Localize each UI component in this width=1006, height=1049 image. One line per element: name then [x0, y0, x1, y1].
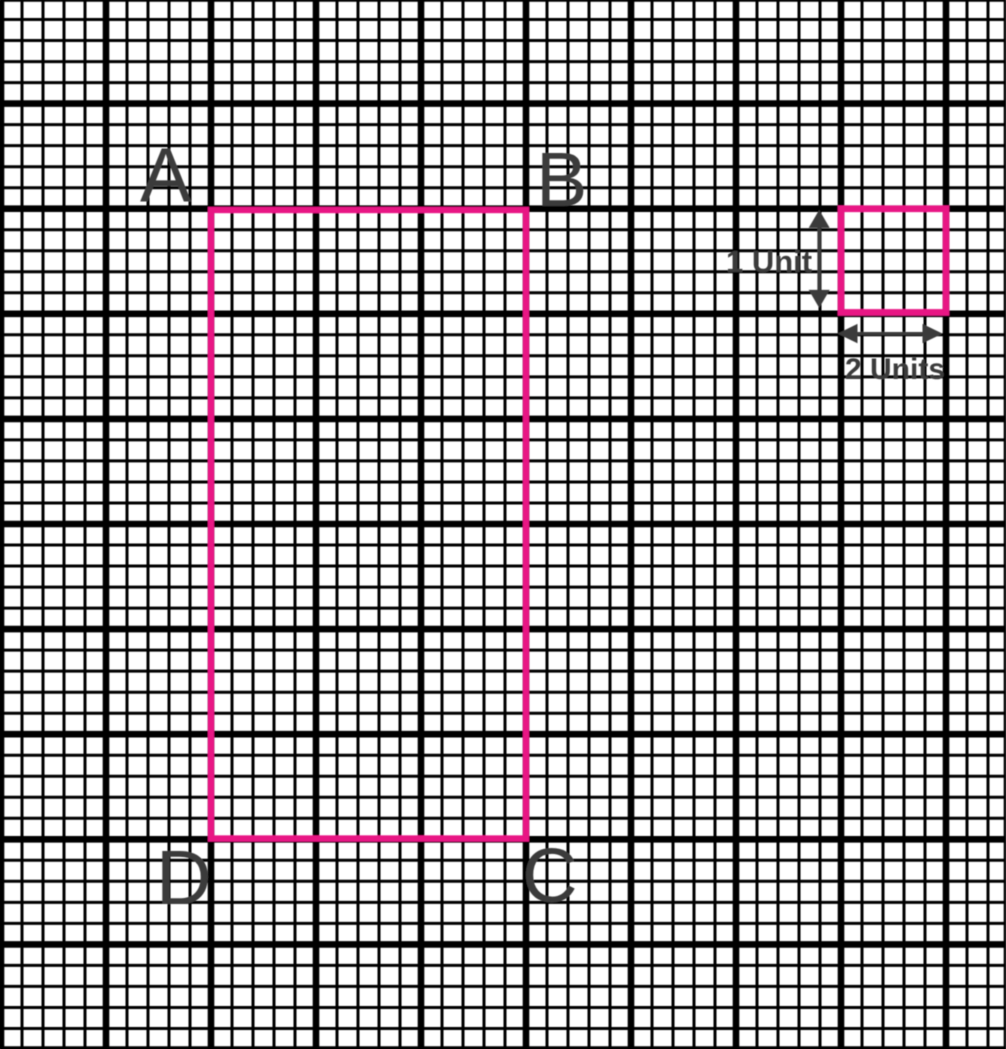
svg-text:D: D [156, 835, 212, 921]
svg-text:1 Unit: 1 Unit [726, 244, 812, 279]
svg-text:B: B [536, 137, 587, 223]
svg-text:C: C [522, 833, 578, 919]
svg-text:A: A [140, 133, 192, 219]
svg-text:2 Units: 2 Units [845, 353, 945, 386]
